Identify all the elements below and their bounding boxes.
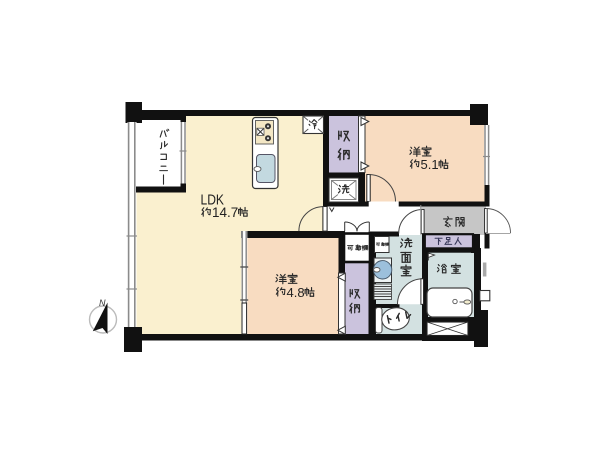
svg-text:14.7: 14.7 — [212, 205, 238, 220]
svg-text:N: N — [99, 298, 106, 308]
svg-text:4.8: 4.8 — [287, 285, 305, 300]
svg-text:5.1: 5.1 — [421, 157, 439, 172]
